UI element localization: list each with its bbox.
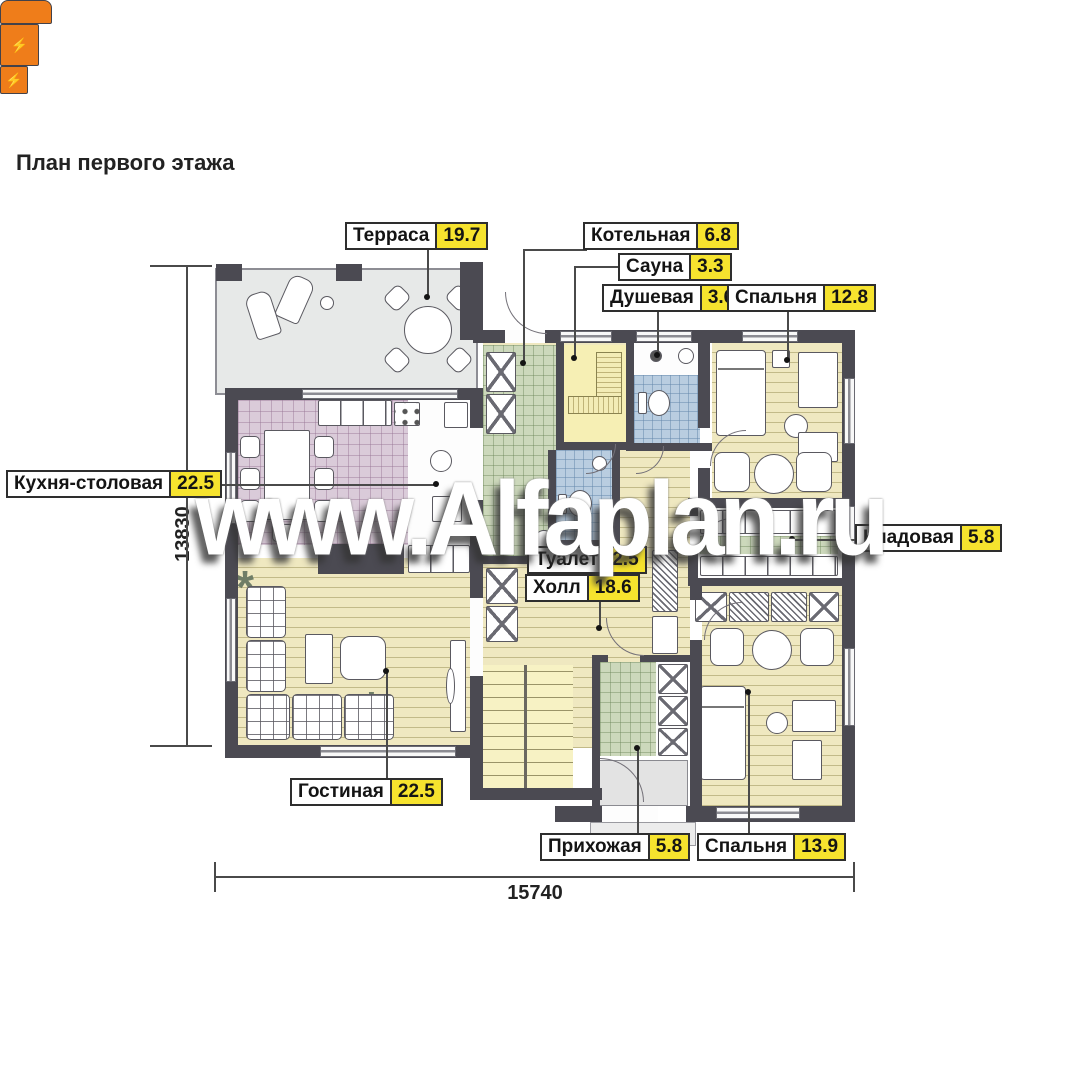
leader-dot	[634, 745, 640, 751]
wardrobe-icon	[486, 606, 518, 642]
window	[320, 746, 456, 757]
room-name: Прихожая	[540, 833, 650, 861]
chair-icon	[240, 436, 260, 458]
leader-dot	[571, 355, 577, 361]
room-area-badge: 6.8	[698, 222, 738, 250]
leader-dot	[784, 357, 790, 363]
leader-line	[574, 266, 620, 268]
sauna-stove-icon: ⚡	[0, 66, 28, 94]
window	[844, 378, 855, 444]
wall-stair-bay	[470, 788, 602, 800]
leader-line	[523, 249, 587, 251]
wall-pantry-bottom	[690, 578, 842, 586]
wall-entry-top	[640, 655, 690, 662]
wall-bottom	[555, 806, 602, 822]
round-table-icon	[752, 630, 792, 670]
leader-line	[657, 308, 659, 355]
dimension-tick	[214, 862, 216, 892]
dimension-width: 15740	[455, 882, 615, 905]
chair-icon	[314, 436, 334, 458]
dimension-tick	[150, 265, 212, 267]
window	[226, 598, 236, 682]
wall	[460, 262, 483, 340]
room-name: Гостиная	[290, 778, 392, 806]
window	[560, 331, 612, 342]
office-chair-icon	[766, 712, 788, 734]
wardrobe-icon	[658, 696, 688, 726]
watermark: www.Alfaplan.ru	[0, 458, 1080, 579]
lightning-icon: ⚡	[5, 72, 22, 89]
wall-boiler-sauna	[556, 338, 564, 450]
desk-icon	[792, 700, 836, 732]
side-table-icon	[320, 296, 334, 310]
leader-dot	[424, 294, 430, 300]
wc-bowl-icon	[648, 390, 670, 416]
cabinet-icon	[792, 740, 822, 780]
terrace-post	[216, 264, 242, 281]
leader-line	[523, 249, 525, 363]
room-name: Спальня	[727, 284, 825, 312]
staircase	[483, 665, 573, 788]
lightning-icon: ⚡	[11, 37, 28, 54]
leader-dot	[654, 352, 660, 358]
leader-line	[574, 266, 576, 358]
sauna-bench-icon	[568, 396, 622, 414]
room-label-bedroom1: Спальня12.8	[727, 284, 876, 312]
room-name: Сауна	[618, 253, 691, 281]
leader-dot	[596, 625, 602, 631]
wall-bedroom2-left	[690, 586, 702, 600]
dimension-tick	[150, 745, 212, 747]
window	[636, 331, 692, 342]
leader-line	[427, 250, 429, 297]
bed-pillow-line	[718, 368, 764, 370]
wardrobe-icon	[658, 728, 688, 756]
dimension-line-horizontal	[215, 876, 855, 878]
washbasin-icon	[678, 348, 694, 364]
desk-icon	[798, 352, 838, 408]
bed-pillow-line	[702, 706, 744, 708]
leader-dot	[383, 668, 389, 674]
sofa-icon	[292, 694, 342, 740]
room-label-shower: Душевая3.6	[602, 284, 742, 312]
wall-bedroom1-left	[698, 330, 710, 428]
wardrobe-icon	[771, 592, 807, 622]
fridge-icon	[444, 402, 468, 428]
wall-bedroom2-left	[690, 640, 702, 806]
room-area-badge: 13.9	[795, 833, 846, 861]
bed-icon	[700, 686, 746, 780]
room-area-badge: 22.5	[392, 778, 443, 806]
room-name: Спальня	[697, 833, 795, 861]
wardrobe-icon	[658, 664, 688, 694]
stove-icon	[394, 402, 420, 426]
door-terrace	[505, 292, 547, 334]
room-label-boiler: Котельная6.8	[583, 222, 739, 250]
room-label-terrace: Терраса19.7	[345, 222, 488, 250]
page-title: План первого этажа	[16, 150, 234, 176]
opening-entrance	[602, 806, 658, 822]
leader-line	[787, 308, 789, 360]
room-area-badge: 5.8	[650, 833, 690, 861]
room-label-sauna: Сауна3.3	[618, 253, 732, 281]
floor-plan-page: План первого этажа	[0, 0, 1080, 1080]
sofa-icon	[246, 586, 286, 638]
bed-icon	[716, 350, 766, 436]
fireplace-icon	[0, 0, 52, 24]
window	[844, 648, 855, 726]
room-area-badge: 12.8	[825, 284, 876, 312]
leader-line	[386, 671, 388, 780]
room-name: Терраса	[345, 222, 437, 250]
wardrobe-icon	[486, 352, 516, 392]
room-area-badge: 19.7	[437, 222, 488, 250]
leader-line	[637, 748, 639, 835]
terrace-post	[336, 264, 362, 281]
room-label-bedroom2: Спальня13.9	[697, 833, 846, 861]
wall-sauna-shower	[626, 338, 634, 450]
wardrobe-icon	[486, 394, 516, 434]
dimension-tick	[853, 862, 855, 892]
kitchen-counter	[318, 400, 392, 426]
window-terrace-glazing	[302, 389, 458, 399]
window	[716, 807, 800, 819]
sofa-icon	[246, 694, 290, 740]
tv-icon	[446, 668, 455, 704]
armchair-icon	[340, 636, 386, 680]
coffee-table-icon	[305, 634, 333, 684]
sofa-icon	[246, 640, 286, 692]
room-entry	[600, 662, 656, 756]
dresser-icon	[652, 616, 678, 654]
room-name: Котельная	[583, 222, 698, 250]
room-area-badge: 3.3	[691, 253, 731, 281]
room-label-entry: Прихожая5.8	[540, 833, 690, 861]
room-label-living: Гостиная22.5	[290, 778, 443, 806]
boiler-icon: ⚡	[0, 24, 39, 66]
terrace-table-icon	[404, 306, 452, 354]
leader-line	[748, 692, 750, 835]
wc-tank-icon	[638, 392, 647, 414]
wall-entry-left	[592, 655, 600, 806]
window	[742, 331, 798, 342]
room-name: Душевая	[602, 284, 702, 312]
armchair-icon	[800, 628, 834, 666]
stair-rail	[524, 665, 527, 788]
leader-dot	[520, 360, 526, 366]
wardrobe-icon	[809, 592, 839, 622]
leader-dot	[745, 689, 751, 695]
opening-living	[470, 598, 483, 676]
